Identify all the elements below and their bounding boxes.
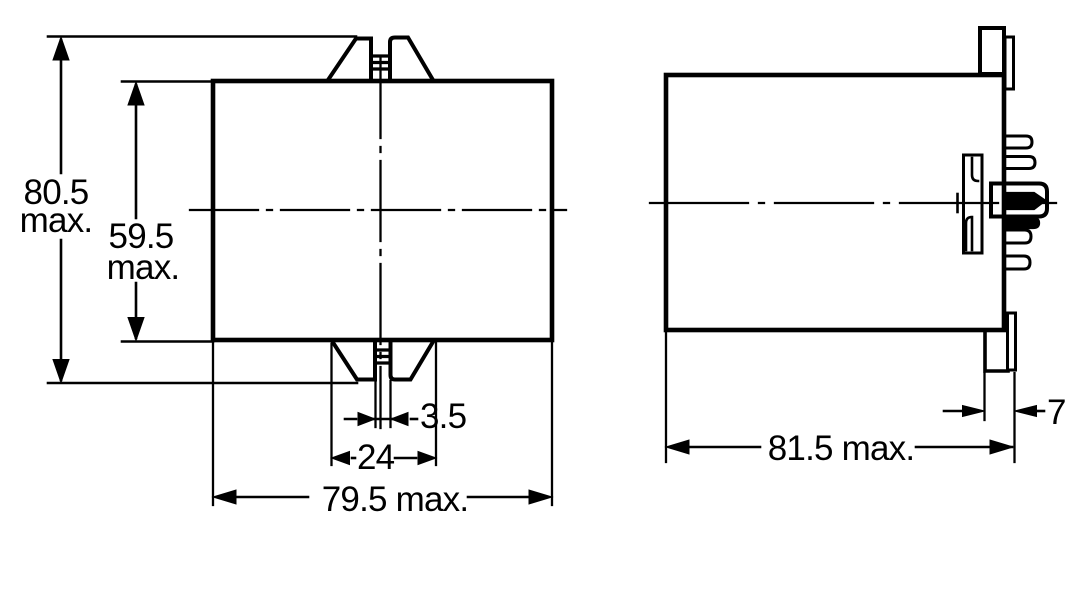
svg-text:3.5: 3.5	[420, 397, 466, 436]
svg-text:79.5 max.: 79.5 max.	[322, 480, 469, 519]
svg-text:24: 24	[357, 438, 395, 477]
svg-text:max.: max.	[20, 201, 93, 240]
svg-text:7: 7	[1047, 393, 1066, 432]
svg-text:max.: max.	[107, 248, 180, 287]
svg-text:81.5 max.: 81.5 max.	[768, 429, 915, 468]
